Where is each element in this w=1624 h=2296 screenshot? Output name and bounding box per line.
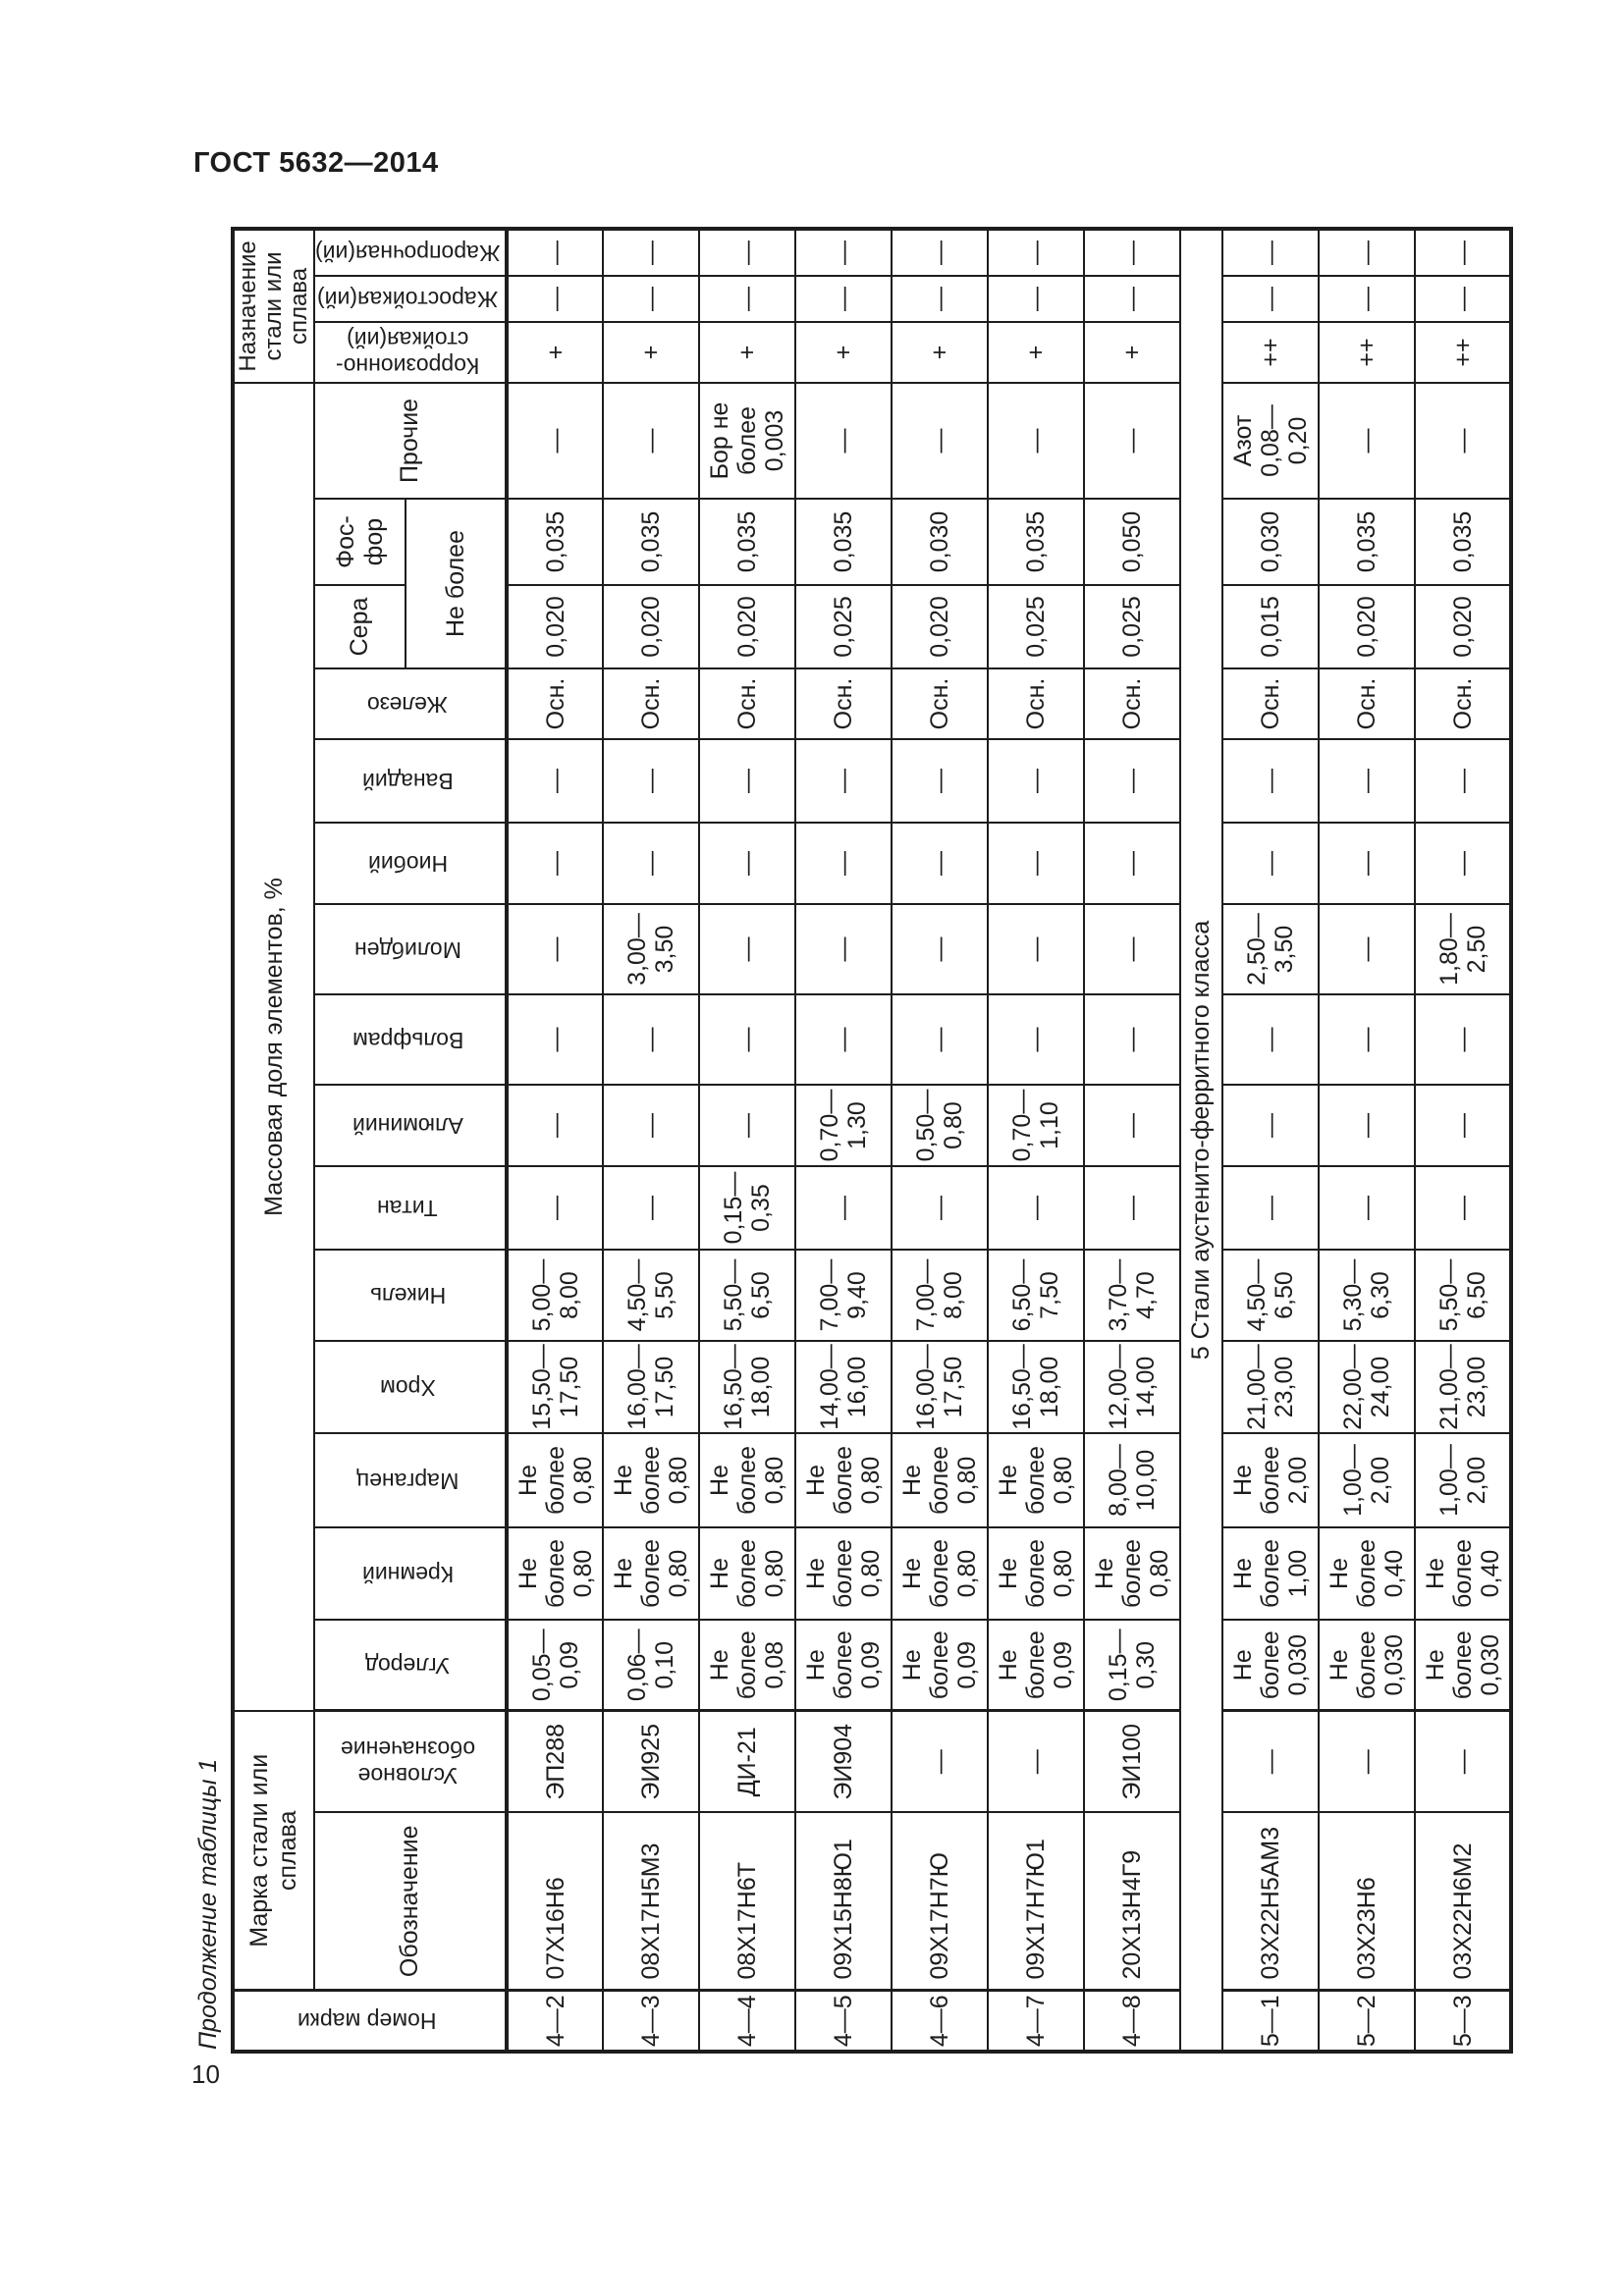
cell-heat-proof: — [1415, 229, 1511, 276]
cell-phosphorus: 0,030 [1222, 499, 1319, 585]
table-row: 4—5 09Х15Н8Ю1 ЭИ904 Не более 0,09 Не бол… [795, 229, 892, 2052]
cell-designation: 08Х17Н6Т [699, 1812, 795, 1991]
cell-sulfur: 0,020 [1415, 585, 1511, 668]
cell-heat-resistant: — [507, 276, 603, 322]
cell-vanadium: — [1319, 739, 1415, 823]
cell-manganese: Не более 0,80 [603, 1433, 699, 1527]
cell-phosphorus: 0,035 [507, 499, 603, 585]
cell-designation: 09Х17Н7Ю1 [988, 1812, 1084, 1991]
cell-designation: 07Х16Н6 [507, 1812, 603, 1991]
cell-heat-resistant: — [603, 276, 699, 322]
header-purpose-group: Назначение стали или сплава [233, 229, 314, 383]
table-row: 4—6 09Х17Н7Ю — Не более 0,09 Не более 0,… [892, 229, 988, 2052]
table-continuation-label: Продолжение таблицы 1 [194, 1759, 223, 2050]
cell-vanadium: — [507, 739, 603, 823]
cell-manganese: Не более 2,00 [1222, 1433, 1319, 1527]
header-phosphorus: Фос- фор [314, 499, 406, 585]
cell-other: — [1084, 383, 1180, 499]
header-nickel: Никель [314, 1250, 507, 1341]
cell-iron: Осн. [699, 668, 795, 739]
cell-tungsten: — [1222, 994, 1319, 1085]
cell-niobium: — [988, 823, 1084, 904]
cell-aluminium: — [1415, 1085, 1511, 1166]
cell-sulfur: 0,020 [507, 585, 603, 668]
cell-silicon: Не более 0,80 [1084, 1527, 1180, 1620]
cell-conventional-designation: ЭИ904 [795, 1711, 892, 1812]
header-number: Номер марки [233, 1991, 507, 2052]
cell-other: — [1415, 383, 1511, 499]
cell-titanium: — [988, 1166, 1084, 1250]
cell-nickel: 3,70— 4,70 [1084, 1250, 1180, 1341]
table-header: Номер марки Марка стали или сплава Массо… [233, 229, 507, 2052]
cell-silicon: Не более 0,80 [892, 1527, 988, 1620]
header-vanadium: Ванадий [314, 739, 507, 823]
cell-corrosion-resistant: + [1084, 322, 1180, 383]
cell-vanadium: — [988, 739, 1084, 823]
cell-niobium: — [507, 823, 603, 904]
rotated-table-region: Продолжение таблицы 1 Номер марки Марка … [187, 231, 1507, 2054]
cell-corrosion-resistant: ++ [1415, 322, 1511, 383]
table-row: 5—1 03Х22Н5АМ3 — Не более 0,030 Не более… [1222, 229, 1319, 2052]
table-row: 5—3 03Х22Н6М2 — Не более 0,030 Не более … [1415, 229, 1511, 2052]
cell-other: — [988, 383, 1084, 499]
cell-conventional-designation: ЭИ925 [603, 1711, 699, 1812]
cell-other: — [1319, 383, 1415, 499]
cell-carbon: Не более 0,09 [892, 1620, 988, 1711]
cell-vanadium: — [795, 739, 892, 823]
header-iron: Железо [314, 668, 507, 739]
cell-sulfur: 0,020 [699, 585, 795, 668]
header-not-more-than: Не более [406, 499, 507, 668]
cell-iron: Осн. [892, 668, 988, 739]
cell-manganese: Не более 0,80 [507, 1433, 603, 1527]
cell-nickel: 7,00— 9,40 [795, 1250, 892, 1341]
header-chromium: Хром [314, 1341, 507, 1433]
cell-carbon: Не более 0,09 [988, 1620, 1084, 1711]
header-mark-group: Марка стали или сплава [233, 1711, 314, 1991]
cell-titanium: — [892, 1166, 988, 1250]
header-heat-resistant: Жаростойкая(ий) [314, 276, 507, 322]
header-titanium: Титан [314, 1166, 507, 1250]
cell-heat-resistant: — [1222, 276, 1319, 322]
cell-phosphorus: 0,035 [1319, 499, 1415, 585]
cell-niobium: — [1222, 823, 1319, 904]
cell-carbon: 0,06— 0,10 [603, 1620, 699, 1711]
cell-heat-proof: — [795, 229, 892, 276]
cell-manganese: 1,00— 2,00 [1415, 1433, 1511, 1527]
cell-silicon: Не более 0,80 [603, 1527, 699, 1620]
cell-corrosion-resistant: ++ [1319, 322, 1415, 383]
section-title: 5 Стали аустенито-ферритного класса [1180, 229, 1222, 2052]
cell-designation: 20Х13Н4Г9 [1084, 1812, 1180, 1991]
cell-heat-proof: — [507, 229, 603, 276]
cell-aluminium: 0,50— 0,80 [892, 1085, 988, 1166]
cell-aluminium: 0,70— 1,30 [795, 1085, 892, 1166]
cell-conventional-designation: — [1222, 1711, 1319, 1812]
header-designation: Обозначение [314, 1812, 507, 1991]
cell-phosphorus: 0,035 [699, 499, 795, 585]
cell-molybdenum: 2,50— 3,50 [1222, 904, 1319, 994]
cell-iron: Осн. [1415, 668, 1511, 739]
cell-nickel: 5,00— 8,00 [507, 1250, 603, 1341]
cell-vanadium: — [892, 739, 988, 823]
cell-other: — [892, 383, 988, 499]
cell-heat-resistant: — [1084, 276, 1180, 322]
table-row: 4—3 08Х17Н5М3 ЭИ925 0,06— 0,10 Не более … [603, 229, 699, 2052]
cell-titanium: 0,15— 0,35 [699, 1166, 795, 1250]
cell-sulfur: 0,025 [795, 585, 892, 668]
cell-molybdenum: 1,80— 2,50 [1415, 904, 1511, 994]
cell-vanadium: — [1415, 739, 1511, 823]
cell-molybdenum: — [507, 904, 603, 994]
cell-tungsten: — [795, 994, 892, 1085]
cell-carbon: Не более 0,09 [795, 1620, 892, 1711]
cell-silicon: Не более 0,80 [507, 1527, 603, 1620]
cell-aluminium: 0,70— 1,10 [988, 1085, 1084, 1166]
header-sulfur: Сера [314, 585, 406, 668]
cell-tungsten: — [1415, 994, 1511, 1085]
cell-aluminium: — [699, 1085, 795, 1166]
cell-vanadium: — [1084, 739, 1180, 823]
cell-iron: Осн. [603, 668, 699, 739]
cell-number: 4—7 [988, 1991, 1084, 2052]
cell-manganese: Не более 0,80 [892, 1433, 988, 1527]
cell-aluminium: — [603, 1085, 699, 1166]
cell-tungsten: — [699, 994, 795, 1085]
cell-silicon: Не более 0,80 [988, 1527, 1084, 1620]
cell-conventional-designation: — [1415, 1711, 1511, 1812]
cell-tungsten: — [892, 994, 988, 1085]
cell-carbon: Не более 0,030 [1415, 1620, 1511, 1711]
cell-titanium: — [603, 1166, 699, 1250]
header-molybdenum: Молибден [314, 904, 507, 994]
header-tungsten: Вольфрам [314, 994, 507, 1085]
cell-iron: Осн. [988, 668, 1084, 739]
rotated-table-inner: Продолжение таблицы 1 Номер марки Марка … [187, 231, 1507, 2054]
header-conventional-designation: Условное обозначение [314, 1711, 507, 1812]
cell-sulfur: 0,020 [603, 585, 699, 668]
cell-manganese: Не более 0,80 [795, 1433, 892, 1527]
cell-titanium: — [507, 1166, 603, 1250]
cell-heat-proof: — [1319, 229, 1415, 276]
cell-chromium: 12,00— 14,00 [1084, 1341, 1180, 1433]
cell-titanium: — [1084, 1166, 1180, 1250]
cell-heat-resistant: — [795, 276, 892, 322]
cell-aluminium: — [1319, 1085, 1415, 1166]
cell-niobium: — [1084, 823, 1180, 904]
cell-manganese: 1,00— 2,00 [1319, 1433, 1415, 1527]
cell-chromium: 21,00— 23,00 [1415, 1341, 1511, 1433]
header-aluminium: Алюминий [314, 1085, 507, 1166]
cell-conventional-designation: ДИ-21 [699, 1711, 795, 1812]
cell-tungsten: — [1319, 994, 1415, 1085]
cell-chromium: 16,50— 18,00 [988, 1341, 1084, 1433]
cell-number: 5—3 [1415, 1991, 1511, 2052]
cell-sulfur: 0,025 [1084, 585, 1180, 668]
cell-silicon: Не более 0,80 [699, 1527, 795, 1620]
cell-other: Бор не более 0,003 [699, 383, 795, 499]
header-mass-fraction-group: Массовая доля элементов, % [233, 383, 314, 1711]
cell-molybdenum: — [1084, 904, 1180, 994]
cell-tungsten: — [1084, 994, 1180, 1085]
cell-carbon: 0,05— 0,09 [507, 1620, 603, 1711]
cell-molybdenum: — [1319, 904, 1415, 994]
cell-titanium: — [1415, 1166, 1511, 1250]
cell-tungsten: — [988, 994, 1084, 1085]
cell-other: — [507, 383, 603, 499]
cell-niobium: — [795, 823, 892, 904]
cell-aluminium: — [1222, 1085, 1319, 1166]
header-carbon: Углерод [314, 1620, 507, 1711]
cell-number: 4—6 [892, 1991, 988, 2052]
cell-molybdenum: — [699, 904, 795, 994]
table-row: 4—7 09Х17Н7Ю1 — Не более 0,09 Не более 0… [988, 229, 1084, 2052]
cell-vanadium: — [603, 739, 699, 823]
cell-silicon: Не более 0,40 [1319, 1527, 1415, 1620]
cell-chromium: 16,00— 17,50 [892, 1341, 988, 1433]
cell-molybdenum: — [795, 904, 892, 994]
cell-niobium: — [603, 823, 699, 904]
cell-silicon: Не более 1,00 [1222, 1527, 1319, 1620]
cell-iron: Осн. [1222, 668, 1319, 739]
cell-chromium: 14,00— 16,00 [795, 1341, 892, 1433]
cell-heat-proof: — [892, 229, 988, 276]
cell-tungsten: — [507, 994, 603, 1085]
scanned-page: { "page": { "doc_number": "ГОСТ 5632—201… [0, 0, 1624, 2296]
cell-heat-proof: — [988, 229, 1084, 276]
table-row: 4—2 07Х16Н6 ЭП288 0,05— 0,09 Не более 0,… [507, 229, 603, 2052]
cell-niobium: — [699, 823, 795, 904]
cell-nickel: 5,50— 6,50 [1415, 1250, 1511, 1341]
cell-titanium: — [795, 1166, 892, 1250]
cell-molybdenum: 3,00— 3,50 [603, 904, 699, 994]
cell-chromium: 21,00— 23,00 [1222, 1341, 1319, 1433]
document-number: ГОСТ 5632—2014 [193, 147, 439, 180]
cell-corrosion-resistant: ++ [1222, 322, 1319, 383]
cell-chromium: 15,50— 17,50 [507, 1341, 603, 1433]
cell-silicon: Не более 0,80 [795, 1527, 892, 1620]
table-row: 4—8 20Х13Н4Г9 ЭИ100 0,15— 0,30 Не более … [1084, 229, 1180, 2052]
cell-heat-resistant: — [892, 276, 988, 322]
cell-designation: 03Х22Н6М2 [1415, 1812, 1511, 1991]
cell-chromium: 16,00— 17,50 [603, 1341, 699, 1433]
cell-designation: 08Х17Н5М3 [603, 1812, 699, 1991]
header-silicon: Кремний [314, 1527, 507, 1620]
header-corrosion-resistant: Коррозионно- стойкая(ий) [314, 322, 507, 383]
cell-sulfur: 0,020 [892, 585, 988, 668]
page-number: 10 [191, 2059, 220, 2090]
table-row: 5—2 03Х23Н6 — Не более 0,030 Не более 0,… [1319, 229, 1415, 2052]
cell-heat-proof: — [603, 229, 699, 276]
cell-niobium: — [892, 823, 988, 904]
cell-phosphorus: 0,035 [603, 499, 699, 585]
cell-carbon: Не более 0,030 [1319, 1620, 1415, 1711]
cell-designation: 09Х15Н8Ю1 [795, 1812, 892, 1991]
cell-number: 4—4 [699, 1991, 795, 2052]
cell-nickel: 5,50— 6,50 [699, 1250, 795, 1341]
header-other: Прочие [314, 383, 507, 499]
cell-conventional-designation: ЭП288 [507, 1711, 603, 1812]
cell-corrosion-resistant: + [988, 322, 1084, 383]
cell-nickel: 4,50— 6,50 [1222, 1250, 1319, 1341]
table-row: 4—4 08Х17Н6Т ДИ-21 Не более 0,08 Не боле… [699, 229, 795, 2052]
cell-number: 4—2 [507, 1991, 603, 2052]
cell-number: 5—2 [1319, 1991, 1415, 2052]
cell-number: 4—3 [603, 1991, 699, 2052]
cell-molybdenum: — [988, 904, 1084, 994]
cell-phosphorus: 0,050 [1084, 499, 1180, 585]
cell-conventional-designation: ЭИ100 [1084, 1711, 1180, 1812]
cell-niobium: — [1415, 823, 1511, 904]
cell-aluminium: — [507, 1085, 603, 1166]
cell-phosphorus: 0,035 [795, 499, 892, 585]
cell-sulfur: 0,020 [1319, 585, 1415, 668]
cell-conventional-designation: — [892, 1711, 988, 1812]
cell-number: 5—1 [1222, 1991, 1319, 2052]
cell-chromium: 22,00— 24,00 [1319, 1341, 1415, 1433]
cell-manganese: Не более 0,80 [988, 1433, 1084, 1527]
cell-manganese: 8,00— 10,00 [1084, 1433, 1180, 1527]
cell-heat-resistant: — [699, 276, 795, 322]
cell-sulfur: 0,025 [988, 585, 1084, 668]
cell-phosphorus: 0,035 [1415, 499, 1511, 585]
cell-designation: 03Х22Н5АМ3 [1222, 1812, 1319, 1991]
cell-heat-resistant: — [1415, 276, 1511, 322]
section-row: 5 Стали аустенито-ферритного класса [1180, 229, 1222, 2052]
cell-iron: Осн. [507, 668, 603, 739]
cell-iron: Осн. [1084, 668, 1180, 739]
cell-other: — [603, 383, 699, 499]
cell-corrosion-resistant: + [892, 322, 988, 383]
cell-nickel: 6,50— 7,50 [988, 1250, 1084, 1341]
cell-number: 4—5 [795, 1991, 892, 2052]
cell-nickel: 5,30— 6,30 [1319, 1250, 1415, 1341]
cell-carbon: Не более 0,08 [699, 1620, 795, 1711]
cell-carbon: 0,15— 0,30 [1084, 1620, 1180, 1711]
cell-phosphorus: 0,030 [892, 499, 988, 585]
cell-number: 4—8 [1084, 1991, 1180, 2052]
cell-titanium: — [1319, 1166, 1415, 1250]
cell-heat-resistant: — [1319, 276, 1415, 322]
cell-corrosion-resistant: + [699, 322, 795, 383]
cell-heat-resistant: — [988, 276, 1084, 322]
cell-nickel: 4,50— 5,50 [603, 1250, 699, 1341]
cell-chromium: 16,50— 18,00 [699, 1341, 795, 1433]
cell-tungsten: — [603, 994, 699, 1085]
cell-aluminium: — [1084, 1085, 1180, 1166]
cell-other: Азот 0,08— 0,20 [1222, 383, 1319, 499]
cell-other: — [795, 383, 892, 499]
cell-iron: Осн. [795, 668, 892, 739]
cell-conventional-designation: — [1319, 1711, 1415, 1812]
cell-manganese: Не более 0,80 [699, 1433, 795, 1527]
steel-grades-table: Номер марки Марка стали или сплава Массо… [231, 227, 1513, 2054]
cell-sulfur: 0,015 [1222, 585, 1319, 668]
cell-heat-proof: — [699, 229, 795, 276]
header-manganese: Марганец [314, 1433, 507, 1527]
cell-corrosion-resistant: + [507, 322, 603, 383]
cell-phosphorus: 0,035 [988, 499, 1084, 585]
cell-corrosion-resistant: + [603, 322, 699, 383]
cell-nickel: 7,00— 8,00 [892, 1250, 988, 1341]
cell-vanadium: — [1222, 739, 1319, 823]
cell-silicon: Не более 0,40 [1415, 1527, 1511, 1620]
cell-niobium: — [1319, 823, 1415, 904]
header-heat-proof: Жаропрочная(ий) [314, 229, 507, 276]
cell-conventional-designation: — [988, 1711, 1084, 1812]
cell-titanium: — [1222, 1166, 1319, 1250]
cell-designation: 03Х23Н6 [1319, 1812, 1415, 1991]
cell-heat-proof: — [1222, 229, 1319, 276]
cell-designation: 09Х17Н7Ю [892, 1812, 988, 1991]
header-niobium: Ниобий [314, 823, 507, 904]
cell-vanadium: — [699, 739, 795, 823]
cell-carbon: Не более 0,030 [1222, 1620, 1319, 1711]
cell-iron: Осн. [1319, 668, 1415, 739]
cell-corrosion-resistant: + [795, 322, 892, 383]
cell-molybdenum: — [892, 904, 988, 994]
table-body: 4—2 07Х16Н6 ЭП288 0,05— 0,09 Не более 0,… [507, 229, 1511, 2052]
cell-heat-proof: — [1084, 229, 1180, 276]
